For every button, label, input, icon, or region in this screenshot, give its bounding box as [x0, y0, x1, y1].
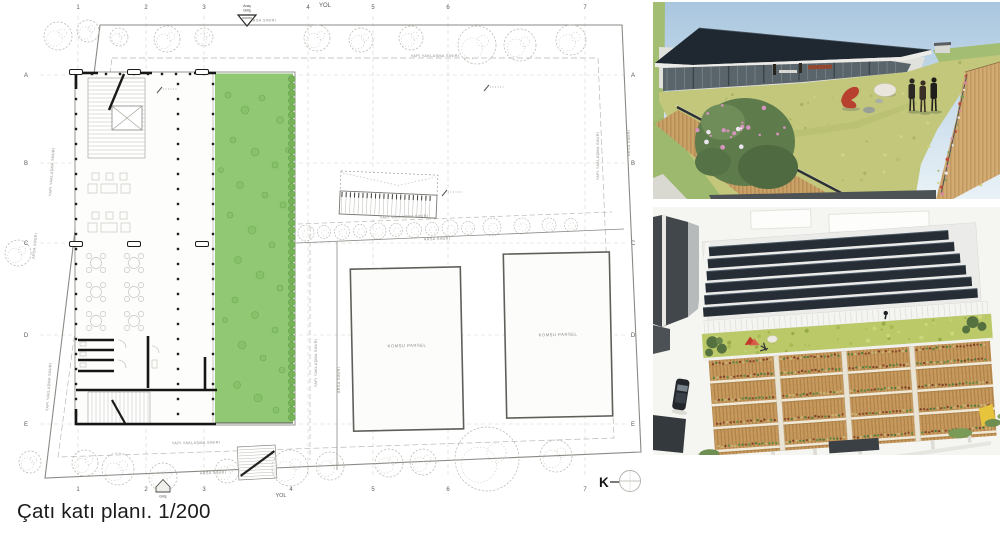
- roof-plan-drawing: 11223344556677AABBCCDDEE KOMŞU PARSEL KO…: [0, 0, 650, 548]
- svg-text:ARSA SINIRI: ARSA SINIRI: [627, 130, 631, 156]
- svg-text:7: 7: [583, 5, 587, 11]
- svg-text:D: D: [631, 333, 636, 339]
- dome-tent: [874, 84, 896, 97]
- svg-text:7: 7: [583, 487, 587, 493]
- plan-caption: Çatı katı planı. 1/200: [17, 500, 211, 524]
- person-indoors: [799, 63, 802, 73]
- svg-text:YAPI YAKLAŞMA SINIRI: YAPI YAKLAŞMA SINIRI: [314, 339, 318, 388]
- north-label: K: [599, 475, 609, 490]
- aerial-view-image: [653, 207, 1000, 455]
- parcel-1: KOMŞU PARSEL: [350, 267, 463, 431]
- svg-text:1: 1: [76, 5, 80, 11]
- svg-text:4: 4: [289, 487, 293, 493]
- svg-text:6: 6: [446, 487, 450, 493]
- rock: [863, 107, 875, 113]
- note-marker-3: [442, 190, 462, 196]
- main-building: [70, 70, 296, 426]
- rock: [875, 99, 883, 103]
- svg-text:4: 4: [306, 5, 310, 11]
- svg-text:YAPI YAKLAŞMA SINIRI: YAPI YAKLAŞMA SINIRI: [48, 148, 55, 197]
- svg-text:ARSA SINIRI: ARSA SINIRI: [200, 471, 226, 476]
- svg-text:A: A: [631, 73, 635, 79]
- svg-text:3: 3: [202, 5, 206, 11]
- svg-text:2: 2: [144, 5, 148, 11]
- roof-terrace-image: [653, 2, 1000, 199]
- svg-text:YAPI YAKLAŞMA SINIRI: YAPI YAKLAŞMA SINIRI: [596, 132, 600, 181]
- parcel-2-label: KOMŞU PARSEL: [539, 332, 578, 338]
- parcel-2: KOMŞU PARSEL: [503, 252, 612, 418]
- vehicle-entry-line2: Giriş: [243, 9, 251, 13]
- entry-house-icon: [156, 480, 170, 493]
- svg-text:2: 2: [144, 487, 148, 493]
- render-roof-terrace: [653, 2, 1000, 199]
- north-symbol: K: [599, 471, 641, 492]
- road-label-top: YOL: [319, 3, 332, 9]
- svg-text:E: E: [24, 422, 28, 428]
- entry-stair: [237, 445, 277, 480]
- svg-text:B: B: [631, 161, 635, 167]
- svg-text:ARSA SINIRI: ARSA SINIRI: [424, 237, 450, 242]
- svg-text:YAPI YAKLAŞMA SINIRI: YAPI YAKLAŞMA SINIRI: [411, 54, 460, 58]
- svg-text:E: E: [631, 422, 635, 428]
- vehicle-entry-arrow: Araç Giriş: [238, 4, 256, 26]
- svg-text:ARSA SINIRI: ARSA SINIRI: [32, 233, 39, 259]
- svg-text:B: B: [24, 161, 28, 167]
- ramp-north: [339, 171, 438, 218]
- svg-text:C: C: [24, 241, 29, 247]
- stair-north: [88, 74, 145, 158]
- main-building-aerial: [684, 221, 1000, 455]
- red-bench: [808, 65, 832, 70]
- svg-text:YAPI YAKLAŞMA SINIRI: YAPI YAKLAŞMA SINIRI: [45, 363, 52, 412]
- render-aerial-view: [653, 207, 1000, 455]
- entry-label: Giriş: [159, 495, 167, 499]
- vehicle-entry-line1: Araç: [243, 4, 251, 8]
- svg-text:ARSA SINIRI: ARSA SINIRI: [337, 367, 341, 393]
- architecture-sheet: 11223344556677AABBCCDDEE KOMŞU PARSEL KO…: [0, 0, 1000, 548]
- svg-text:A: A: [24, 73, 28, 79]
- person-indoors: [773, 64, 776, 75]
- svg-text:YAPI YAKLAŞMA SINIRI: YAPI YAKLAŞMA SINIRI: [172, 441, 221, 446]
- svg-text:3: 3: [202, 487, 206, 493]
- stair-south: [88, 392, 150, 425]
- note-marker-2: [484, 85, 504, 91]
- parcel-1-label: KOMŞU PARSEL: [387, 343, 426, 349]
- road-label-bottom: YOL: [275, 493, 286, 499]
- svg-text:1: 1: [76, 487, 80, 493]
- svg-text:D: D: [24, 333, 29, 339]
- svg-text:6: 6: [446, 5, 450, 11]
- entry-marker: Giriş: [156, 480, 170, 499]
- svg-text:5: 5: [371, 5, 375, 11]
- white-table: [779, 70, 797, 73]
- svg-text:5: 5: [371, 487, 375, 493]
- svg-text:ARSA SINIRI: ARSA SINIRI: [250, 19, 276, 23]
